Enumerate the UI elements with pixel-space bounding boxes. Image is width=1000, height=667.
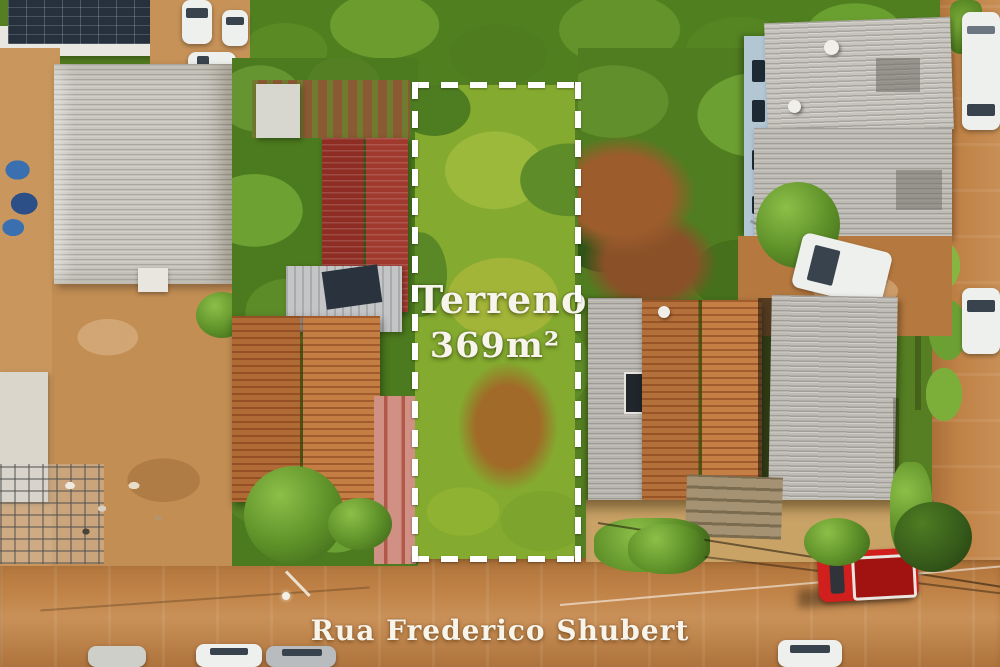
plot-area: Terreno 369m² <box>415 85 575 559</box>
roof-hatch <box>624 372 644 414</box>
parked-car <box>182 0 212 44</box>
dark-roof-panel <box>322 264 383 309</box>
construction-debris <box>46 458 206 550</box>
van-window <box>967 104 995 116</box>
plot-border-bottom <box>412 556 581 562</box>
bottom-parked-car <box>266 646 336 667</box>
road-tree <box>894 502 972 572</box>
car-window <box>282 649 322 656</box>
plot-border-right <box>575 82 581 562</box>
plot-label: Terreno <box>415 277 575 322</box>
car-window <box>210 648 248 655</box>
front-bush-small <box>328 498 392 550</box>
parked-van <box>962 12 1000 130</box>
street-name-label: Rua Frederico Shubert <box>0 614 1000 647</box>
solar-panels <box>8 0 154 44</box>
satellite-dish-icon <box>824 40 839 55</box>
blue-equipment <box>0 146 44 242</box>
plot-grass <box>415 85 575 559</box>
tr-roof-patch <box>896 170 942 210</box>
tr-window <box>752 100 765 122</box>
car-window <box>186 8 208 18</box>
satellite-dish-icon <box>788 100 801 113</box>
tr-window <box>752 60 765 82</box>
van-window <box>967 26 995 34</box>
street-lamp-icon <box>282 592 290 600</box>
garden-shed <box>256 84 300 138</box>
plot-border-top <box>412 82 581 88</box>
tr-roof-upper <box>764 17 954 135</box>
bottom-parked-car <box>196 644 262 667</box>
rm-orange-roof <box>642 300 762 502</box>
road-tree <box>628 524 706 574</box>
parked-car-right <box>962 288 1000 354</box>
rm-gray-roof-right <box>768 295 898 503</box>
aerial-photo: Terreno 369m² Rua Frederico Shubert <box>0 0 1000 667</box>
road-tree <box>804 518 870 566</box>
car-window <box>967 300 995 312</box>
warehouse-roof <box>54 64 236 284</box>
warehouse-porch <box>138 268 168 292</box>
plot-area-label: 369m² <box>415 325 575 366</box>
tr-roof-patch <box>876 58 920 92</box>
car-window <box>807 245 841 286</box>
parked-car <box>222 10 248 46</box>
roof-dish-icon <box>658 306 670 318</box>
plot-border-left <box>412 82 418 562</box>
bottom-parked-car <box>88 646 146 667</box>
car-window <box>226 17 244 25</box>
